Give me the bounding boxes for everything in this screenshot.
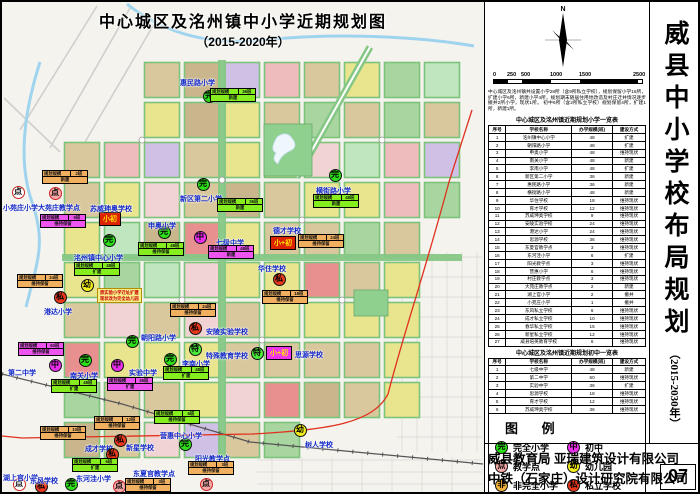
table-cell: 6 <box>489 405 506 413</box>
school-marker-icon: 完 <box>79 354 92 367</box>
table-cell: 新建 <box>613 173 646 181</box>
table-cell: 5 <box>489 397 506 405</box>
plan-tag-value: 48班 <box>167 243 183 248</box>
plan-tag-key: 规划规模 <box>41 427 69 432</box>
plan-tag-mode: 维持保留 <box>41 221 85 226</box>
school-label: 小苑庄小学 <box>3 203 38 213</box>
table-cell: 横街路小学 <box>506 189 572 197</box>
table-cell: 撤并 <box>613 299 646 307</box>
map-annotation-overlay: 完惠民路小学完新区第二小学点小苑庄小学点大苑庄教学点完申奥小学中七级中学完洺州镇… <box>2 2 484 492</box>
table-cell: 新建 <box>613 181 646 189</box>
plan-tag: 规划规模48班扩建 <box>51 379 97 393</box>
school-type-box: 小+初 <box>266 346 292 360</box>
plan-tag-mode: 维持保留 <box>18 281 62 286</box>
table-cell: 24 <box>572 228 613 236</box>
table-row: 23东风私立学校6维持现状 <box>489 307 646 315</box>
table-cell: 华住学校 <box>506 196 572 204</box>
school-label: 东风学校 <box>30 476 58 486</box>
table-cell: 12 <box>572 397 613 405</box>
school-marker-icon: 私 <box>54 291 67 304</box>
table-row: 9华住学校18维持现状 <box>489 196 646 204</box>
school-marker-icon: 点 <box>12 186 25 199</box>
plan-tag-value: 10班 <box>69 427 85 432</box>
school-marker-icon: 完 <box>197 178 210 191</box>
table-cell: 3 <box>489 382 506 390</box>
scale-segment <box>494 80 508 83</box>
scale-label: 500 <box>521 72 530 78</box>
plan-tag-value: 48班 <box>342 195 358 200</box>
scale-bar-body <box>493 79 643 84</box>
table-cell: 小苑庄小学 <box>506 299 572 307</box>
plan-tag-key: 规划规模 <box>19 343 47 348</box>
north-compass-icon: N <box>543 4 583 70</box>
table-row: 27威县培英教育学校6维持现状 <box>489 338 646 346</box>
map-note-line: 原实验小学迁址扩建 <box>100 290 139 296</box>
plan-tag: 规划规模24班维持保留 <box>170 303 216 317</box>
school-marker-icon: 点 <box>49 187 62 200</box>
table-cell: 育才学校 <box>506 204 572 212</box>
table-row: 26新星私立学校12维持现状 <box>489 330 646 338</box>
school-label: 新星学校 <box>126 443 154 453</box>
plan-tag-key: 规划规模 <box>314 195 342 200</box>
plan-tag-key: 规划规模 <box>108 378 136 383</box>
plan-tag-value: 24班 <box>46 275 62 280</box>
table-cell: 东河洼小学 <box>506 252 572 260</box>
table-cell: 维持现状 <box>613 405 646 413</box>
table-cell: 2 <box>489 374 506 382</box>
plan-tag-key: 规划规模 <box>52 380 80 385</box>
table-cell: 36 <box>572 181 613 189</box>
table-cell: 育才学校 <box>506 397 572 405</box>
school-marker-icon: 幼 <box>294 424 307 437</box>
table-cell: 维持现状 <box>613 390 646 398</box>
table-cell: 19 <box>489 275 506 283</box>
plan-tag: 规划规模24班维持保留 <box>17 274 63 288</box>
table-cell: 48 <box>572 165 613 173</box>
table-cell: 维持现状 <box>613 275 646 283</box>
plan-tag-mode: 维持保留 <box>126 485 170 490</box>
plan-tag: 规划规模36班扩建 <box>107 377 153 391</box>
table-cell: 48 <box>572 149 613 157</box>
table-row: 21湖上官小学2撤并 <box>489 291 646 299</box>
plan-tag: 规划规模36班新建 <box>217 198 263 212</box>
table-row: 2朝阳路小学48扩建 <box>489 141 646 149</box>
table-cell: 26 <box>489 330 506 338</box>
table-cell: 扩建 <box>613 141 646 149</box>
table-cell: 维持现状 <box>613 315 646 323</box>
table-row: 20大苑庄教学点2新建 <box>489 283 646 291</box>
table-cell: 维持现状 <box>613 220 646 228</box>
table-cell: 阳光教学点 <box>506 259 572 267</box>
table-row: 4南关小学48新建 <box>489 157 646 165</box>
table-header-cell: 办学规模(班) <box>572 126 613 134</box>
table-row: 11苏威珅奥学校9维持现状 <box>489 212 646 220</box>
table-row: 3申奥小学48维持现状 <box>489 149 646 157</box>
table-row: 6新区第二小学36新建 <box>489 173 646 181</box>
table-row: 12安陵实验学校24维持现状 <box>489 220 646 228</box>
table-cell: 扩建 <box>613 382 646 390</box>
school-label: 惠民路小学 <box>180 78 215 88</box>
table-cell: 18 <box>489 267 506 275</box>
table-cell: 6 <box>572 252 613 260</box>
school-marker-icon: 幼 <box>81 279 94 292</box>
table-cell: 7 <box>489 181 506 189</box>
plan-tag: 规划规模12班维持保留 <box>94 416 140 430</box>
plan-tag-value: 60班 <box>47 343 63 348</box>
table-cell: 2 <box>572 283 613 291</box>
table-cell: 6 <box>572 307 613 315</box>
table-cell: 11 <box>489 212 506 220</box>
plan-tag: 规划规模10班维持保留 <box>40 426 86 440</box>
plan-tag-key: 规划规模 <box>75 263 103 268</box>
table-cell: 17 <box>489 259 506 267</box>
plan-tag-mode: 维持保留 <box>41 433 85 438</box>
middle-school-table: 序号学校名称办学规模(班)建设方式1七级中学48新建2第二中学60维持现状3实验… <box>488 358 646 414</box>
city-map: 中心城区及洺州镇中小学近期规划图 （2015-2020年） 完惠民路小学完新区第… <box>2 2 484 492</box>
table-header-cell: 办学规模(班) <box>572 358 613 366</box>
plan-tag-key: 规划规模 <box>18 275 46 280</box>
table-header-cell: 序号 <box>489 126 506 134</box>
scale-bar: 0250500100015002500 m <box>493 72 643 86</box>
table-row: 3实验中学36扩建 <box>489 382 646 390</box>
table-cell: 16 <box>489 252 506 260</box>
plan-tag-mode: 新建 <box>211 95 255 100</box>
plan-tag-mode: 维持保留 <box>171 310 215 315</box>
table-row: 4思源学校18维持现状 <box>489 390 646 398</box>
table-cell: 10 <box>572 315 613 323</box>
scale-labels: 0250500100015002500 m <box>493 72 643 79</box>
school-label: 德才学校 <box>273 226 301 236</box>
table-cell: 洺州镇中心小学 <box>506 133 572 141</box>
table-cell: 14 <box>489 236 506 244</box>
table-cell: 48 <box>572 366 613 374</box>
plan-tag-value: 3班 <box>217 462 233 467</box>
plan-tag-value: 9班 <box>69 215 85 220</box>
table-cell: 村庄教学点 <box>506 275 572 283</box>
table-cell: 8 <box>489 189 506 197</box>
scale-segment <box>580 80 638 83</box>
school-marker-icon: 私 <box>189 322 202 335</box>
side-title-strip: 威县中小学校布局规划 （2015-2030年） <box>649 2 699 443</box>
table-cell: 南关小学 <box>506 157 572 165</box>
plan-tag: 规划规模48班新建 <box>208 245 254 259</box>
table-cell: 5 <box>489 165 506 173</box>
middle-table-title: 中心城区及洺州镇近期规划初中一览表 <box>488 348 646 357</box>
school-label: 新区第二小学 <box>180 194 222 204</box>
plan-tag-value: 6班 <box>183 411 199 416</box>
plan-tag-value: 48班 <box>237 246 253 251</box>
table-cell: 36 <box>572 405 613 413</box>
table-cell: 成才私立学校 <box>506 315 572 323</box>
table-cell: 苏威珅奥学校 <box>506 405 572 413</box>
table-cell: 18 <box>572 196 613 204</box>
plan-tag-key: 规划规模 <box>43 171 71 176</box>
school-marker-icon: 完 <box>164 353 177 366</box>
table-cell: 思源学校 <box>506 236 572 244</box>
scale-label: 1000 <box>550 72 562 78</box>
plan-tag-key: 规划规模 <box>164 367 192 372</box>
plan-tag-key: 规划规模 <box>126 479 154 484</box>
table-cell: 15 <box>489 244 506 252</box>
plan-tag: 规划规模6班扩建 <box>72 458 118 472</box>
table-row: 2第二中学60维持现状 <box>489 374 646 382</box>
table-cell: 维持现状 <box>613 259 646 267</box>
table-cell: 东风私立学校 <box>506 307 572 315</box>
table-header-cell: 序号 <box>489 358 506 366</box>
table-cell: 36 <box>572 173 613 181</box>
table-cell: 湖上官小学 <box>506 291 572 299</box>
plan-tag: 规划规模48班扩建 <box>163 366 209 380</box>
plan-tag-value: 36班 <box>246 199 262 204</box>
school-type-box: 小+初 <box>270 236 296 250</box>
side-subtitle: （2015-2030年） <box>666 348 682 429</box>
plan-tag-mode: 维持保留 <box>189 468 233 473</box>
plan-tag-mode: 新建 <box>218 205 262 210</box>
table-row: 16东河洼小学6扩建 <box>489 252 646 260</box>
table-cell: 25 <box>489 322 506 330</box>
plan-sheet: 中心城区及洺州镇中小学近期规划图 （2015-2020年） 完惠民路小学完新区第… <box>0 0 700 494</box>
table-cell: 扩建 <box>613 252 646 260</box>
plan-tag-key: 规划规模 <box>189 462 217 467</box>
table-header-cell: 学校名称 <box>506 358 572 366</box>
table-row: 17阳光教学点3维持现状 <box>489 259 646 267</box>
table-cell: 东夏官教学点 <box>506 244 572 252</box>
table-row: 1洺州镇中心小学48扩建 <box>489 133 646 141</box>
plan-tag-key: 规划规模 <box>139 243 167 248</box>
plan-tag-value: 12班 <box>123 417 139 422</box>
school-label: 第二中学 <box>8 368 36 378</box>
table-header-row: 序号学校名称办学规模(班)建设方式 <box>489 126 646 134</box>
table-cell: 27 <box>489 338 506 346</box>
plan-tag-mode: 维持保留 <box>155 417 199 422</box>
plan-tag-value: 48班 <box>103 263 119 268</box>
table-cell: 21 <box>489 291 506 299</box>
plan-tag: 规划规模60班维持保留 <box>18 342 64 356</box>
school-marker-icon: 完 <box>126 335 139 348</box>
plan-tag-mode: 维持保留 <box>139 249 183 254</box>
school-marker-icon: 点 <box>113 480 126 493</box>
school-marker-icon: 中 <box>194 231 207 244</box>
table-row: 1七级中学48新建 <box>489 366 646 374</box>
school-type-box: 小初 <box>99 212 121 226</box>
table-cell: 新建 <box>613 283 646 291</box>
table-cell: 维持现状 <box>613 307 646 315</box>
table-cell: 春华私立学校 <box>506 322 572 330</box>
plan-tag-key: 规划规模 <box>73 459 101 464</box>
table-cell: 撤并 <box>613 291 646 299</box>
table-header-cell: 学校名称 <box>506 126 572 134</box>
plan-tag-mode: 新建 <box>43 177 87 182</box>
school-label: 朝阳路小学 <box>141 333 176 343</box>
table-cell: 12 <box>572 330 613 338</box>
table-cell: 48 <box>572 189 613 197</box>
school-marker-icon: 完 <box>329 169 342 182</box>
table-cell: 23 <box>489 307 506 315</box>
table-cell: 维持现状 <box>613 204 646 212</box>
table-cell: 2 <box>572 291 613 299</box>
school-label: 东河洼小学 <box>76 474 111 484</box>
table-cell: 新建 <box>613 157 646 165</box>
plan-tag: 规划规模24班维持保留 <box>298 234 344 248</box>
table-cell: 24 <box>489 315 506 323</box>
table-cell: 22 <box>489 299 506 307</box>
map-title: 中心城区及洺州镇中小学近期规划图 （2015-2020年） <box>2 8 484 50</box>
plan-tag-value: 36班 <box>136 378 152 383</box>
primary-table-title: 中心城区及洺州镇近期规划小学一览表 <box>488 115 646 124</box>
table-cell: 3 <box>572 259 613 267</box>
map-title-line2: （2015-2020年） <box>2 33 484 50</box>
table-cell: 苏威珅奥学校 <box>506 212 572 220</box>
plan-tag-key: 规划规模 <box>211 89 239 94</box>
table-cell: 维持现状 <box>613 244 646 252</box>
map-note-line: 现状改为完全幼儿园 <box>100 296 139 302</box>
table-row: 18营惠小学6维持现状 <box>489 267 646 275</box>
scale-label: 0 <box>493 72 496 78</box>
plan-tag-value: 36班 <box>239 89 255 94</box>
plan-tag-key: 规划规模 <box>218 199 246 204</box>
table-cell: 第二中学 <box>506 374 572 382</box>
table-cell: 安陵实验学校 <box>506 220 572 228</box>
table-cell: 新建 <box>613 189 646 197</box>
table-cell: 维持现状 <box>613 338 646 346</box>
plan-tag-mode: 维持保留 <box>263 297 307 302</box>
table-cell: 新建 <box>613 366 646 374</box>
tables-and-legend: 中心城区及洺州镇近期规划小学一览表 序号学校名称办学规模(班)建设方式1洺州镇中… <box>488 114 646 494</box>
plan-tag-mode: 扩建 <box>164 373 208 378</box>
table-cell: 维持现状 <box>613 236 646 244</box>
svg-text:N: N <box>560 6 565 13</box>
table-row: 7惠民路小学36新建 <box>489 181 646 189</box>
table-cell: 大苑庄教学点 <box>506 283 572 291</box>
table-cell: 扩建 <box>613 165 646 173</box>
plan-tag: 规划规模3班维持保留 <box>188 461 234 475</box>
table-cell: 营惠小学 <box>506 267 572 275</box>
table-cell: 36 <box>572 382 613 390</box>
plan-tag-mode: 扩建 <box>75 269 119 274</box>
school-label: 申奥小学 <box>148 221 176 231</box>
school-marker-icon: 特 <box>189 343 202 356</box>
plan-tag-mode: 维持保留 <box>19 349 63 354</box>
school-marker-icon: 私 <box>273 273 286 286</box>
info-panel: N 0250500100015002500 m 中心城区及洺州镇共设置小学28所… <box>484 2 698 492</box>
plan-tag-key: 规划规模 <box>299 235 327 240</box>
plan-tag-value: 24班 <box>327 235 343 240</box>
table-cell: 9 <box>489 196 506 204</box>
plan-tag-value: 2班 <box>71 171 87 176</box>
plan-tag: 规划规模6班维持保留 <box>154 410 200 424</box>
table-row: 10育才学校12维持现状 <box>489 204 646 212</box>
table-cell: 4 <box>489 390 506 398</box>
table-cell: 维持现状 <box>613 228 646 236</box>
plan-tag: 规划规模48班新建 <box>313 194 359 208</box>
table-row: 24成才私立学校10维持现状 <box>489 315 646 323</box>
plan-tag-value: 24班 <box>199 304 215 309</box>
scale-label: 250 <box>507 72 516 78</box>
table-cell: 申奥小学 <box>506 149 572 157</box>
table-cell: 新区第二小学 <box>506 173 572 181</box>
school-label: 营惠中心小学 <box>160 431 202 441</box>
table-cell: 24 <box>572 220 613 228</box>
table-row: 8横街路小学48新建 <box>489 189 646 197</box>
table-cell: 10 <box>489 204 506 212</box>
table-cell: 6 <box>572 338 613 346</box>
table-cell: 维持现状 <box>613 212 646 220</box>
school-label: 思源学校 <box>295 350 323 360</box>
school-label: 港达小学 <box>44 307 72 317</box>
table-cell: 9 <box>572 212 613 220</box>
table-cell: 惠民路小学 <box>506 181 572 189</box>
plan-tag-mode: 扩建 <box>108 384 152 389</box>
table-cell: 36 <box>572 236 613 244</box>
school-label: 华住学校 <box>258 264 286 274</box>
plan-tag: 规划规模9班维持保留 <box>40 214 86 228</box>
table-cell: 朝阳路小学 <box>506 141 572 149</box>
table-cell: 48 <box>572 133 613 141</box>
table-row: 13港达小学24维持现状 <box>489 228 646 236</box>
table-cell: 七级中学 <box>506 366 572 374</box>
table-cell: 3 <box>572 275 613 283</box>
plan-tag-mode: 扩建 <box>52 386 96 391</box>
panel-content: N 0250500100015002500 m 中心城区及洺州镇共设置小学28所… <box>485 2 649 443</box>
table-cell: 1 <box>572 299 613 307</box>
plan-tag: 规划规模18班维持保留 <box>262 290 308 304</box>
scale-segment <box>522 80 551 83</box>
map-note: 原实验小学迁址扩建现状改为完全幼儿园 <box>97 288 142 303</box>
title-block: 威县教育局 亚瑞建筑设计有限公司 中铁（石家庄）设计研究院有限公司 07 <box>485 443 699 492</box>
table-row: 5李南小学48扩建 <box>489 165 646 173</box>
table-cell: 3 <box>572 244 613 252</box>
table-cell: 48 <box>572 141 613 149</box>
table-cell: 港达小学 <box>506 228 572 236</box>
plan-tag: 规划规模36班新建 <box>210 88 256 102</box>
table-cell: 48 <box>572 157 613 165</box>
table-cell: 思源学校 <box>506 390 572 398</box>
table-cell: 1 <box>489 366 506 374</box>
table-cell: 维持现状 <box>613 330 646 338</box>
school-marker-icon: 中 <box>111 359 124 372</box>
plan-tag-value: 3班 <box>154 479 170 484</box>
plan-description: 中心城区及洺州镇共设置小学28所（含9所私立学校），规划保留小学16所，扩建小学… <box>488 89 646 111</box>
table-cell: 实验中学 <box>506 382 572 390</box>
table-cell: 4 <box>489 157 506 165</box>
table-cell: 60 <box>572 374 613 382</box>
table-cell: 6 <box>489 173 506 181</box>
table-row: 14思源学校36维持现状 <box>489 236 646 244</box>
plan-tag: 规划规模3班维持保留 <box>125 478 171 492</box>
school-label: 特殊教育学校 <box>206 351 248 361</box>
plan-tag: 规划规模48班扩建 <box>74 262 120 276</box>
table-cell: 威县培英教育学校 <box>506 338 572 346</box>
scale-label: 1500 <box>579 72 591 78</box>
plan-tag-mode: 维持保留 <box>95 423 139 428</box>
plan-tag: 规划规模2班新建 <box>42 170 88 184</box>
school-label: 苏威珅奥学校 <box>90 204 132 214</box>
table-cell: 6 <box>572 267 613 275</box>
table-cell: 2 <box>489 141 506 149</box>
table-cell: 15 <box>572 322 613 330</box>
plan-tag-key: 规划规模 <box>155 411 183 416</box>
plan-tag-key: 规划规模 <box>263 291 291 296</box>
school-marker-icon: 特 <box>251 347 264 360</box>
plan-tag-value: 48班 <box>80 380 96 385</box>
plan-tag-mode: 扩建 <box>73 465 117 470</box>
map-title-line1: 中心城区及洺州镇中小学近期规划图 <box>2 8 484 32</box>
table-cell: 维持现状 <box>613 149 646 157</box>
table-cell: 维持现状 <box>613 397 646 405</box>
plan-tag-value: 18班 <box>291 291 307 296</box>
school-marker-icon: 点 <box>200 478 213 491</box>
table-cell: 13 <box>489 228 506 236</box>
